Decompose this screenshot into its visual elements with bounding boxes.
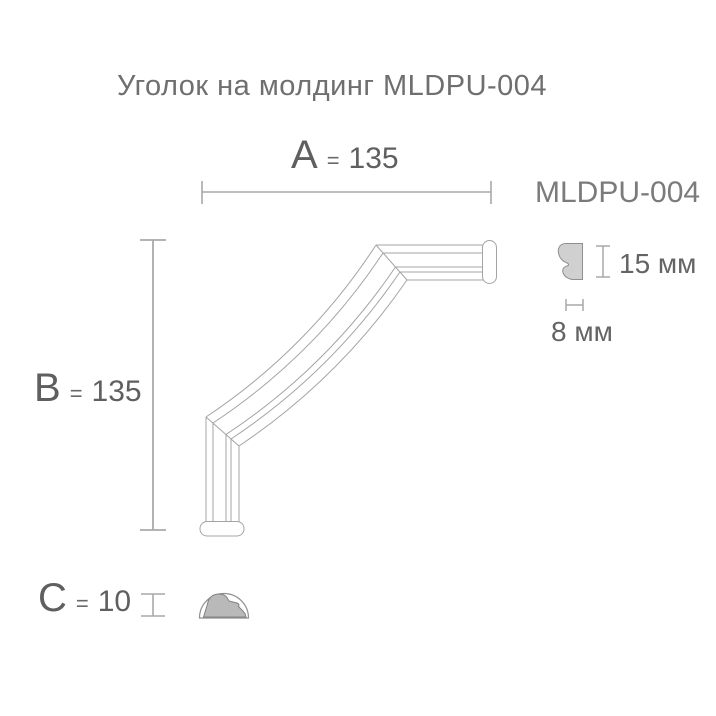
dimension-a-equals: = — [327, 148, 340, 174]
profile-cross-section — [558, 244, 582, 280]
dimension-c-value: 10 — [98, 585, 131, 619]
dimension-c-equals: = — [76, 591, 89, 617]
profile-height-dimension — [596, 246, 610, 277]
end-cap-profile — [200, 594, 249, 619]
page-title: Уголок на молдинг MLDPU-004 — [117, 70, 547, 103]
dimension-a-label: A = 135 — [291, 133, 399, 178]
molding-end-cap-bottom — [200, 522, 244, 537]
dimension-line-c — [141, 594, 165, 616]
dimension-a-value: 135 — [349, 142, 399, 176]
dimension-c-label: C = 10 — [38, 576, 131, 621]
dimension-line-a — [202, 181, 491, 204]
profile-width-label: 8 мм — [551, 316, 613, 348]
dimension-line-b — [140, 240, 166, 530]
dimension-b-letter: B — [34, 366, 61, 411]
dimension-b-label: B = 135 — [34, 366, 142, 411]
dimension-b-value: 135 — [92, 375, 142, 409]
profile-height-label: 15 мм — [619, 248, 696, 280]
drawing-canvas: Уголок на молдинг MLDPU-004 A = 135 MLDP… — [0, 0, 716, 716]
profile-width-dimension — [566, 299, 583, 311]
product-code-label: MLDPU-004 — [535, 176, 700, 210]
dimension-a-letter: A — [291, 133, 318, 178]
corner-molding-drawing — [200, 241, 497, 537]
dimension-c-letter: C — [38, 576, 67, 621]
molding-end-cap-right — [483, 241, 497, 284]
dimension-b-equals: = — [70, 381, 83, 407]
